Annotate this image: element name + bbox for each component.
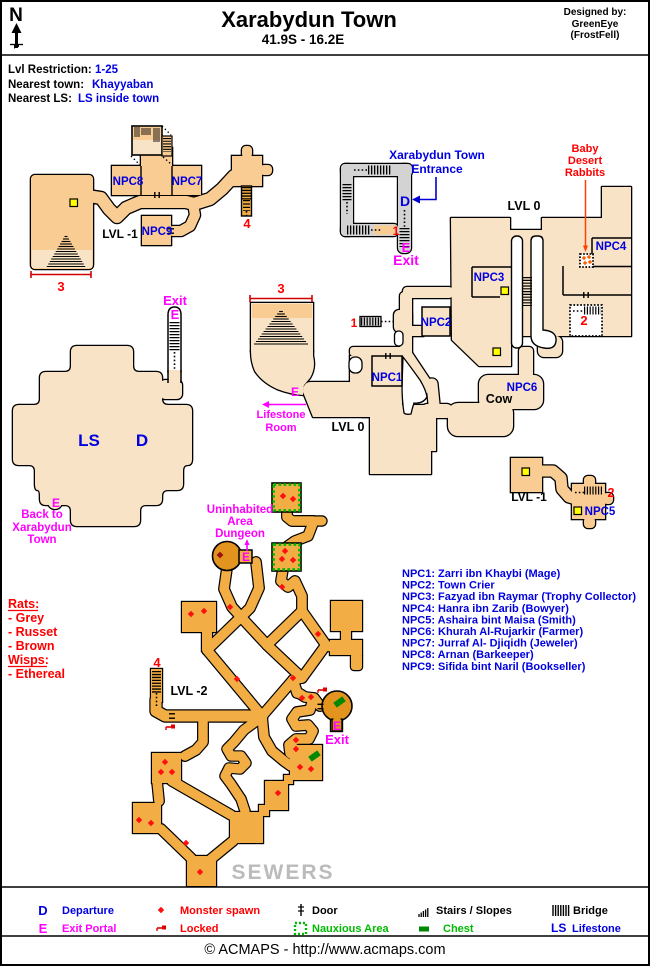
svg-text:(FrostFell): (FrostFell): [571, 30, 620, 41]
svg-text:E: E: [52, 496, 60, 510]
svg-text:4: 4: [153, 655, 161, 670]
svg-text:© ACMAPS - http://www.acmaps.c: © ACMAPS - http://www.acmaps.com: [204, 942, 445, 958]
svg-text:Lvl Restriction:: Lvl Restriction:: [8, 64, 92, 76]
svg-text:Stairs / Slopes: Stairs / Slopes: [436, 905, 512, 917]
svg-text:LVL 0: LVL 0: [332, 420, 365, 434]
svg-text:Xarabydun: Xarabydun: [12, 522, 71, 534]
svg-text:Nearest LS:: Nearest LS:: [8, 93, 72, 105]
svg-text:NPC5: NPC5: [585, 506, 616, 518]
svg-text:NPC3: NPC3: [474, 272, 505, 284]
svg-text:NPC8: Arnan (Barkeeper): NPC8: Arnan (Barkeeper): [402, 649, 534, 661]
svg-text:Uninhabited: Uninhabited: [207, 504, 273, 516]
svg-text:LS inside town: LS inside town: [78, 93, 159, 105]
svg-text:D: D: [136, 431, 148, 450]
svg-text:Exit: Exit: [325, 732, 350, 747]
svg-text:Area: Area: [227, 516, 253, 528]
svg-text:1: 1: [351, 316, 358, 330]
svg-text:Khayyaban: Khayyaban: [92, 79, 153, 91]
svg-text:LVL -1: LVL -1: [511, 490, 547, 504]
svg-text:Cow: Cow: [486, 392, 513, 406]
svg-text:4: 4: [243, 216, 251, 231]
svg-text:NPC9: NPC9: [142, 226, 173, 238]
svg-text:- Brown: - Brown: [8, 639, 55, 653]
svg-text:NPC5: Ashaira bint Maisa (Smit: NPC5: Ashaira bint Maisa (Smith): [402, 614, 576, 626]
svg-text:D: D: [38, 903, 47, 918]
svg-text:41.9S - 16.2E: 41.9S - 16.2E: [262, 32, 345, 47]
svg-text:Rabbits: Rabbits: [565, 167, 605, 179]
svg-text:NPC1: Zarri ibn Khaybi (Mage): NPC1: Zarri ibn Khaybi (Mage): [402, 568, 561, 580]
svg-text:E: E: [39, 921, 48, 936]
svg-text:Exit Portal: Exit Portal: [62, 923, 116, 935]
svg-text:E: E: [291, 385, 299, 399]
svg-text:Bridge: Bridge: [573, 905, 608, 917]
svg-text:LVL -1: LVL -1: [102, 227, 138, 241]
svg-text:NPC2: NPC2: [421, 317, 452, 329]
svg-text:E: E: [171, 307, 180, 322]
svg-text:NPC7: NPC7: [172, 176, 203, 188]
svg-text:Room: Room: [265, 422, 296, 434]
svg-text:Entrance: Entrance: [411, 162, 463, 176]
svg-text:Xarabydun Town: Xarabydun Town: [221, 7, 397, 32]
svg-text:LVL 0: LVL 0: [508, 199, 541, 213]
svg-text:NPC6: Khurah Al-Rujarkir (Farm: NPC6: Khurah Al-Rujarkir (Farmer): [402, 626, 583, 638]
svg-text:Wisps:: Wisps:: [8, 653, 49, 667]
svg-text:Exit: Exit: [393, 252, 419, 268]
svg-text:Baby: Baby: [572, 143, 600, 155]
svg-text:Xarabydun Town: Xarabydun Town: [389, 148, 485, 162]
svg-text:Designed by:: Designed by:: [564, 7, 627, 18]
svg-text:NPC3: Fazyad ibn Raymar (Troph: NPC3: Fazyad ibn Raymar (Trophy Collecto…: [402, 591, 636, 603]
svg-text:- Ethereal: - Ethereal: [8, 667, 65, 681]
svg-text:LS: LS: [551, 921, 566, 935]
svg-text:LS: LS: [78, 431, 100, 450]
svg-text:Chest: Chest: [443, 923, 474, 935]
svg-text:2: 2: [608, 486, 615, 500]
svg-text:Town: Town: [27, 534, 56, 546]
svg-text:Monster spawn: Monster spawn: [180, 905, 260, 917]
svg-text:Lifestone: Lifestone: [572, 923, 621, 935]
svg-text:1-25: 1-25: [95, 64, 119, 76]
svg-text:D: D: [400, 193, 410, 209]
svg-text:NPC4: Hanra ibn Zarib (Bowyer): NPC4: Hanra ibn Zarib (Bowyer): [402, 603, 569, 615]
svg-text:E: E: [242, 552, 250, 564]
svg-text:- Russet: - Russet: [8, 625, 58, 639]
svg-text:Exit: Exit: [163, 293, 188, 308]
svg-text:SEWERS: SEWERS: [231, 861, 334, 884]
svg-text:Door: Door: [312, 905, 338, 917]
svg-text:LVL -2: LVL -2: [170, 684, 207, 698]
svg-text:GreenEye: GreenEye: [572, 19, 619, 30]
svg-text:2: 2: [580, 313, 587, 328]
svg-text:N: N: [9, 5, 23, 26]
svg-text:NPC2: Town Crier: NPC2: Town Crier: [402, 580, 495, 592]
svg-text:Departure: Departure: [62, 905, 114, 917]
svg-text:Nauxious Area: Nauxious Area: [312, 923, 390, 935]
svg-text:Rats:: Rats:: [8, 597, 39, 611]
svg-text:3: 3: [277, 281, 284, 296]
svg-text:NPC4: NPC4: [596, 241, 627, 253]
svg-text:NPC7: Jurraf Al- Djiqidh (Jewe: NPC7: Jurraf Al- Djiqidh (Jeweler): [402, 638, 578, 650]
svg-text:NPC8: NPC8: [113, 176, 144, 188]
svg-text:Lifestone: Lifestone: [257, 409, 306, 421]
svg-text:Back to: Back to: [21, 509, 63, 521]
svg-text:Dungeon: Dungeon: [215, 528, 265, 540]
svg-text:Nearest town:: Nearest town:: [8, 79, 84, 91]
svg-text:NPC9: Sifida bint Naril (Books: NPC9: Sifida bint Naril (Bookseller): [402, 661, 586, 673]
svg-text:1: 1: [393, 224, 400, 238]
svg-text:Desert: Desert: [568, 155, 603, 167]
svg-text:NPC1: NPC1: [372, 372, 403, 384]
svg-text:E: E: [333, 719, 341, 733]
svg-text:Locked: Locked: [180, 923, 219, 935]
svg-text:3: 3: [57, 279, 64, 294]
svg-text:- Grey: - Grey: [8, 611, 44, 625]
